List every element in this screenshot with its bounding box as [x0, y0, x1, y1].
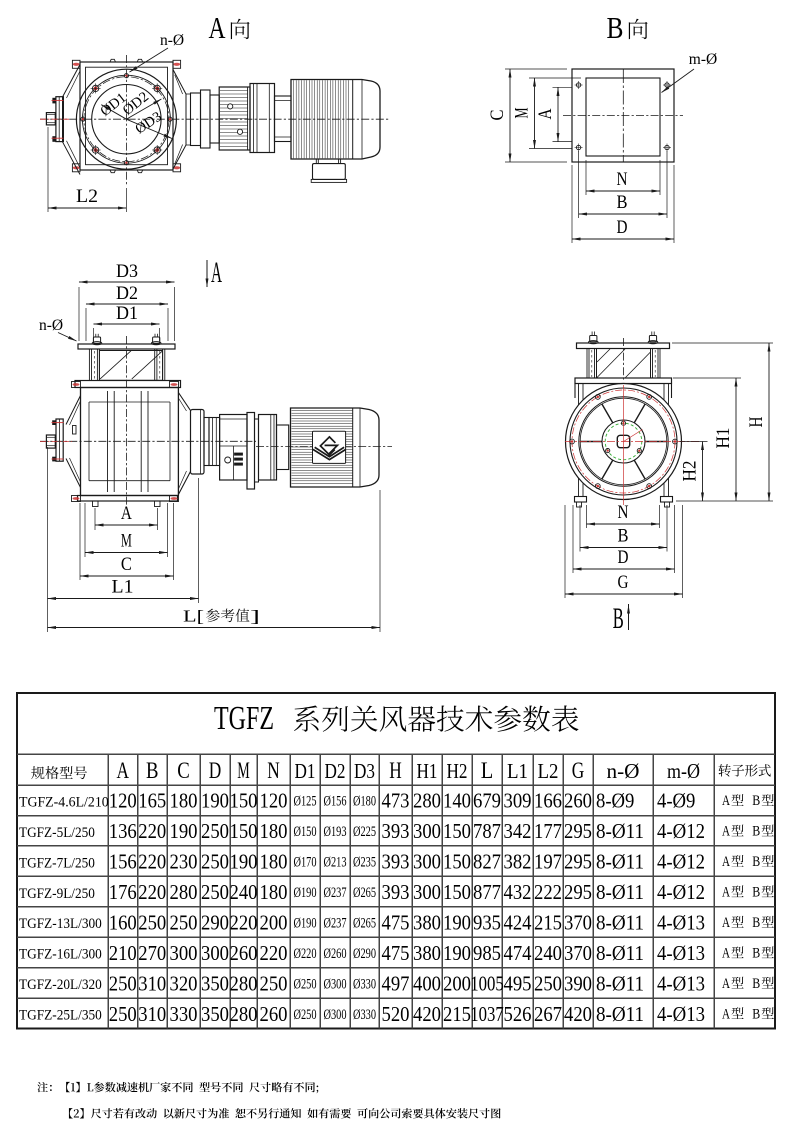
svg-text:300: 300 — [413, 850, 441, 874]
svg-text:150: 150 — [230, 819, 258, 843]
svg-text:220: 220 — [138, 880, 166, 904]
svg-text:Ø330: Ø330 — [353, 976, 376, 992]
svg-text:B: B — [146, 758, 159, 784]
svg-text:432: 432 — [504, 880, 532, 904]
svg-text:8-Ø11: 8-Ø11 — [596, 880, 644, 904]
svg-text:D3: D3 — [116, 262, 138, 282]
svg-text:310: 310 — [138, 1002, 166, 1026]
svg-text:526: 526 — [504, 1002, 532, 1026]
svg-text:400: 400 — [413, 971, 441, 995]
svg-text:380: 380 — [413, 910, 441, 934]
svg-text:140: 140 — [443, 789, 471, 813]
svg-text:Ø260: Ø260 — [324, 946, 347, 962]
svg-text:250: 250 — [201, 819, 229, 843]
svg-text:497: 497 — [382, 971, 410, 995]
svg-text:424: 424 — [504, 910, 532, 934]
svg-text:N: N — [267, 758, 280, 784]
svg-text:M: M — [237, 758, 250, 784]
svg-text:295: 295 — [564, 850, 592, 874]
svg-text:Ø330: Ø330 — [353, 1007, 376, 1023]
svg-text:300: 300 — [413, 880, 441, 904]
svg-text:Ø225: Ø225 — [353, 824, 376, 840]
svg-text:B: B — [752, 824, 760, 840]
svg-text:495: 495 — [504, 971, 532, 995]
svg-text:C: C — [487, 110, 508, 121]
svg-text:TGFZ: TGFZ — [214, 700, 274, 737]
svg-text:8-Ø11: 8-Ø11 — [596, 850, 644, 874]
svg-text:Ø190: Ø190 — [294, 915, 317, 931]
svg-text:877: 877 — [473, 880, 501, 904]
svg-text:8-Ø11: 8-Ø11 — [596, 819, 644, 843]
svg-text:260: 260 — [260, 1002, 288, 1026]
svg-text:m-Ø: m-Ø — [689, 51, 717, 68]
svg-text:N: N — [617, 169, 628, 190]
svg-text:D2: D2 — [116, 284, 138, 304]
svg-text:250: 250 — [109, 971, 137, 995]
svg-text:Ø180: Ø180 — [353, 794, 376, 810]
svg-text:B: B — [752, 793, 760, 809]
svg-text:L: L — [481, 758, 494, 784]
svg-text:935: 935 — [473, 910, 501, 934]
svg-text:B: B — [617, 192, 628, 213]
svg-text:n-Ø: n-Ø — [607, 759, 640, 783]
svg-text:H2: H2 — [681, 461, 701, 482]
svg-text:420: 420 — [413, 1002, 441, 1026]
svg-text:TGFZ-13L/300: TGFZ-13L/300 — [19, 916, 102, 932]
svg-text:Ø237: Ø237 — [324, 885, 347, 901]
svg-text:156: 156 — [109, 850, 137, 874]
svg-text:Ø150: Ø150 — [294, 824, 317, 840]
svg-text:190: 190 — [443, 910, 471, 934]
svg-text:A: A — [209, 10, 226, 45]
svg-text:H1: H1 — [417, 759, 438, 783]
svg-text:330: 330 — [170, 1002, 198, 1026]
svg-text:787: 787 — [473, 819, 501, 843]
svg-text:B: B — [752, 945, 760, 961]
svg-text:270: 270 — [138, 941, 166, 965]
svg-text:370: 370 — [564, 941, 592, 965]
svg-text:A: A — [722, 854, 730, 870]
svg-text:Ø125: Ø125 — [294, 794, 317, 810]
svg-text:L2: L2 — [76, 187, 98, 207]
svg-text:N: N — [618, 502, 629, 523]
svg-text:180: 180 — [260, 880, 288, 904]
svg-text:120: 120 — [109, 789, 137, 813]
svg-text:TGFZ-20L/320: TGFZ-20L/320 — [19, 977, 102, 993]
svg-text:]: ] — [250, 607, 260, 626]
svg-text:150: 150 — [230, 789, 258, 813]
svg-text:120: 120 — [260, 789, 288, 813]
svg-text:380: 380 — [413, 941, 441, 965]
svg-text:A: A — [117, 758, 130, 784]
svg-text:300: 300 — [413, 819, 441, 843]
svg-text:TGFZ-7L/250: TGFZ-7L/250 — [19, 855, 95, 871]
svg-text:320: 320 — [170, 971, 198, 995]
svg-text:A: A — [722, 824, 730, 840]
svg-text:300: 300 — [201, 941, 229, 965]
svg-text:390: 390 — [564, 971, 592, 995]
svg-text:D1: D1 — [295, 759, 316, 783]
svg-text:295: 295 — [564, 880, 592, 904]
svg-text:D1: D1 — [116, 304, 138, 324]
svg-text:474: 474 — [504, 941, 532, 965]
svg-text:160: 160 — [109, 910, 137, 934]
svg-text:D: D — [617, 217, 628, 238]
svg-text:L[: L[ — [183, 607, 204, 626]
svg-text:393: 393 — [382, 819, 410, 843]
svg-text:250: 250 — [170, 910, 198, 934]
svg-text:TGFZ-16L/300: TGFZ-16L/300 — [19, 947, 102, 963]
svg-text:475: 475 — [382, 941, 410, 965]
svg-text:m-Ø: m-Ø — [667, 759, 700, 783]
svg-text:280: 280 — [413, 789, 441, 813]
svg-text:B: B — [752, 915, 760, 931]
svg-text:177: 177 — [534, 819, 562, 843]
svg-text:C: C — [177, 758, 190, 784]
svg-text:222: 222 — [534, 880, 562, 904]
svg-text:985: 985 — [473, 941, 501, 965]
svg-text:240: 240 — [534, 941, 562, 965]
svg-text:4-Ø13: 4-Ø13 — [657, 941, 705, 965]
svg-text:A: A — [722, 976, 730, 992]
svg-text:827: 827 — [473, 850, 501, 874]
svg-text:382: 382 — [504, 850, 532, 874]
svg-text:D: D — [618, 547, 629, 568]
svg-text:393: 393 — [382, 880, 410, 904]
svg-text:220: 220 — [138, 819, 166, 843]
svg-text:200: 200 — [260, 910, 288, 934]
svg-text:H: H — [389, 758, 402, 784]
svg-text:215: 215 — [443, 1002, 471, 1026]
svg-text:150: 150 — [443, 850, 471, 874]
svg-text:D3: D3 — [354, 759, 375, 783]
svg-text:220: 220 — [230, 910, 258, 934]
svg-text:B: B — [607, 10, 624, 45]
svg-text:250: 250 — [109, 1002, 137, 1026]
svg-text:280: 280 — [230, 1002, 258, 1026]
svg-text:475: 475 — [382, 910, 410, 934]
svg-text:B: B — [752, 976, 760, 992]
svg-text:260: 260 — [564, 789, 592, 813]
svg-text:4-Ø9: 4-Ø9 — [657, 789, 695, 813]
svg-text:165: 165 — [138, 789, 166, 813]
svg-text:210: 210 — [109, 941, 137, 965]
svg-text:250: 250 — [201, 880, 229, 904]
svg-text:150: 150 — [443, 819, 471, 843]
svg-text:309: 309 — [504, 789, 532, 813]
svg-text:TGFZ-4.6L/210: TGFZ-4.6L/210 — [19, 794, 109, 810]
svg-text:8-Ø9: 8-Ø9 — [596, 789, 634, 813]
svg-text:260: 260 — [230, 941, 258, 965]
svg-text:370: 370 — [564, 910, 592, 934]
svg-text:TGFZ-5L/250: TGFZ-5L/250 — [19, 825, 95, 841]
svg-text:D2: D2 — [325, 759, 346, 783]
svg-text:280: 280 — [230, 971, 258, 995]
svg-text:295: 295 — [564, 819, 592, 843]
svg-text:180: 180 — [260, 819, 288, 843]
svg-text:A: A — [535, 108, 556, 119]
svg-text:150: 150 — [443, 880, 471, 904]
svg-text:190: 190 — [201, 789, 229, 813]
svg-text:240: 240 — [230, 880, 258, 904]
svg-text:H2: H2 — [447, 759, 468, 783]
svg-text:250: 250 — [260, 971, 288, 995]
svg-text:166: 166 — [534, 789, 562, 813]
svg-text:197: 197 — [534, 850, 562, 874]
svg-text:Ø265: Ø265 — [353, 915, 376, 931]
svg-text:A: A — [722, 884, 730, 900]
svg-text:200: 200 — [443, 971, 471, 995]
svg-text:180: 180 — [170, 789, 198, 813]
svg-text:Ø220: Ø220 — [294, 946, 317, 962]
svg-text:Ø170: Ø170 — [294, 855, 317, 871]
svg-text:342: 342 — [504, 819, 532, 843]
svg-text:4-Ø13: 4-Ø13 — [657, 1002, 705, 1026]
svg-text:220: 220 — [260, 941, 288, 965]
svg-text:Ø250: Ø250 — [294, 1007, 317, 1023]
svg-text:8-Ø11: 8-Ø11 — [596, 1002, 644, 1026]
svg-text:310: 310 — [138, 971, 166, 995]
svg-text:B: B — [752, 884, 760, 900]
svg-text:A: A — [722, 945, 730, 961]
svg-text:M: M — [121, 531, 132, 552]
svg-text:A: A — [121, 503, 132, 524]
svg-text:180: 180 — [260, 850, 288, 874]
svg-text:1005: 1005 — [470, 971, 504, 995]
svg-text:8-Ø11: 8-Ø11 — [596, 910, 644, 934]
svg-text:A: A — [722, 1006, 730, 1022]
svg-text:Ø193: Ø193 — [324, 824, 347, 840]
svg-text:679: 679 — [473, 789, 501, 813]
svg-text:Ø300: Ø300 — [324, 976, 347, 992]
svg-text:220: 220 — [138, 850, 166, 874]
svg-text:473: 473 — [382, 789, 410, 813]
svg-text:350: 350 — [201, 1002, 229, 1026]
svg-text:1037: 1037 — [470, 1002, 504, 1026]
svg-text:300: 300 — [170, 941, 198, 965]
svg-text:190: 190 — [443, 941, 471, 965]
svg-text:4-Ø12: 4-Ø12 — [657, 880, 705, 904]
svg-text:8-Ø11: 8-Ø11 — [596, 941, 644, 965]
svg-text:250: 250 — [534, 971, 562, 995]
svg-text:4-Ø12: 4-Ø12 — [657, 850, 705, 874]
svg-text:520: 520 — [382, 1002, 410, 1026]
svg-text:290: 290 — [201, 910, 229, 934]
svg-text:230: 230 — [170, 850, 198, 874]
svg-text:TGFZ-25L/350: TGFZ-25L/350 — [19, 1008, 102, 1024]
svg-text:4-Ø13: 4-Ø13 — [657, 910, 705, 934]
svg-text:350: 350 — [201, 971, 229, 995]
svg-text:Ø290: Ø290 — [353, 946, 376, 962]
svg-text:Ø265: Ø265 — [353, 885, 376, 901]
svg-text:B: B — [613, 603, 624, 635]
svg-text:L1: L1 — [507, 759, 528, 783]
svg-text:190: 190 — [230, 850, 258, 874]
svg-text:n-Ø: n-Ø — [160, 32, 184, 49]
svg-text:Ø213: Ø213 — [324, 855, 347, 871]
svg-text:L2: L2 — [538, 759, 559, 783]
svg-text:190: 190 — [170, 819, 198, 843]
svg-text:4-Ø12: 4-Ø12 — [657, 819, 705, 843]
svg-text:267: 267 — [534, 1002, 562, 1026]
svg-text:Ø156: Ø156 — [324, 794, 347, 810]
svg-text:A: A — [722, 915, 730, 931]
svg-text:Ø237: Ø237 — [324, 915, 347, 931]
svg-text:8-Ø11: 8-Ø11 — [596, 971, 644, 995]
svg-text:H: H — [746, 416, 767, 427]
svg-text:A: A — [211, 257, 222, 289]
svg-text:M: M — [512, 107, 533, 118]
svg-text:C: C — [121, 554, 132, 575]
svg-text:B: B — [752, 1006, 760, 1022]
svg-text:250: 250 — [201, 850, 229, 874]
svg-text:420: 420 — [564, 1002, 592, 1026]
svg-text:136: 136 — [109, 819, 137, 843]
svg-text:A: A — [722, 793, 730, 809]
svg-text:4-Ø13: 4-Ø13 — [657, 971, 705, 995]
svg-text:Ø235: Ø235 — [353, 855, 376, 871]
svg-text:D: D — [209, 758, 222, 784]
svg-text:H1: H1 — [714, 428, 734, 449]
svg-text:250: 250 — [138, 910, 166, 934]
svg-text:Ø300: Ø300 — [324, 1007, 347, 1023]
svg-text:Ø250: Ø250 — [294, 976, 317, 992]
svg-text:215: 215 — [534, 910, 562, 934]
svg-text:L1: L1 — [112, 578, 134, 598]
svg-text:176: 176 — [109, 880, 137, 904]
svg-text:393: 393 — [382, 850, 410, 874]
svg-text:TGFZ-9L/250: TGFZ-9L/250 — [19, 886, 95, 902]
svg-text:B: B — [618, 526, 629, 547]
svg-text:G: G — [572, 758, 585, 784]
svg-text:n-Ø: n-Ø — [39, 317, 63, 334]
svg-text:Ø190: Ø190 — [294, 885, 317, 901]
svg-text:G: G — [618, 572, 629, 593]
svg-text:280: 280 — [170, 880, 198, 904]
svg-text:B: B — [752, 854, 760, 870]
